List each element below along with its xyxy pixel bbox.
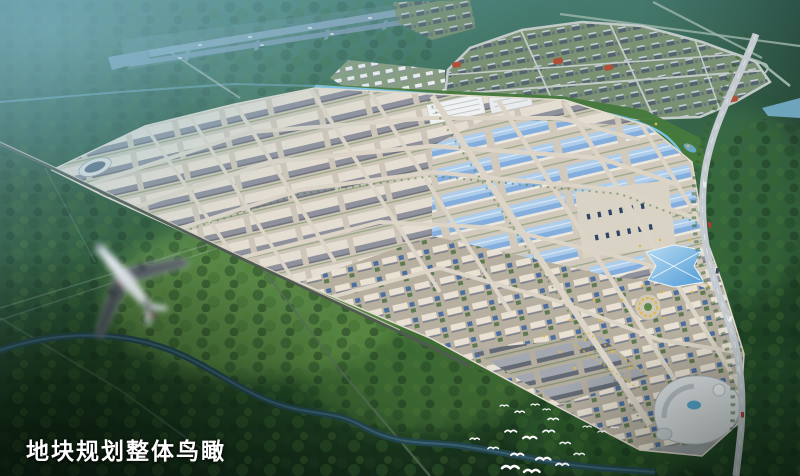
caption: 地块规划整体鸟瞰 — [26, 432, 226, 466]
aerial-rendering — [0, 0, 800, 476]
atmosphere — [0, 0, 800, 476]
aerial-rendering-stage: 地块规划整体鸟瞰 — [0, 0, 800, 476]
